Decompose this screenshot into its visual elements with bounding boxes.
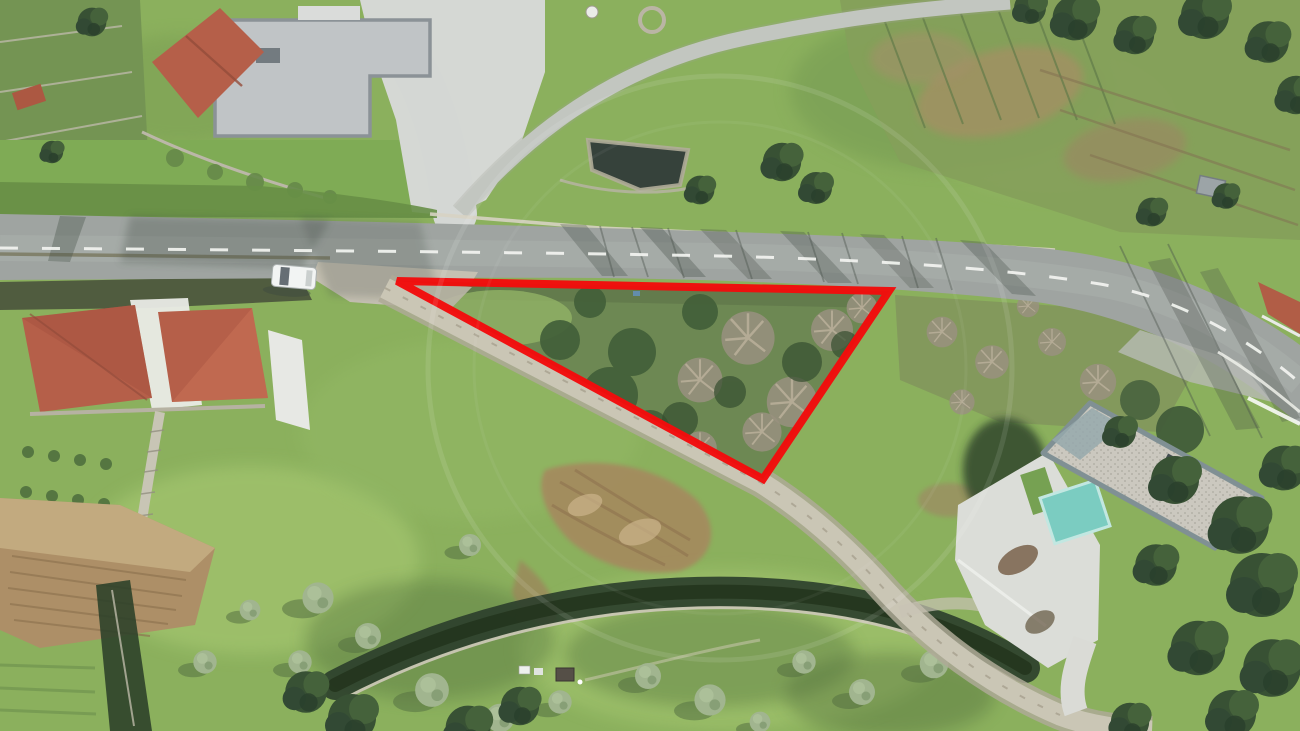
aerial-photo (0, 0, 1300, 731)
aerial-photo-stage (0, 0, 1300, 731)
haze-overlay (0, 0, 1300, 731)
